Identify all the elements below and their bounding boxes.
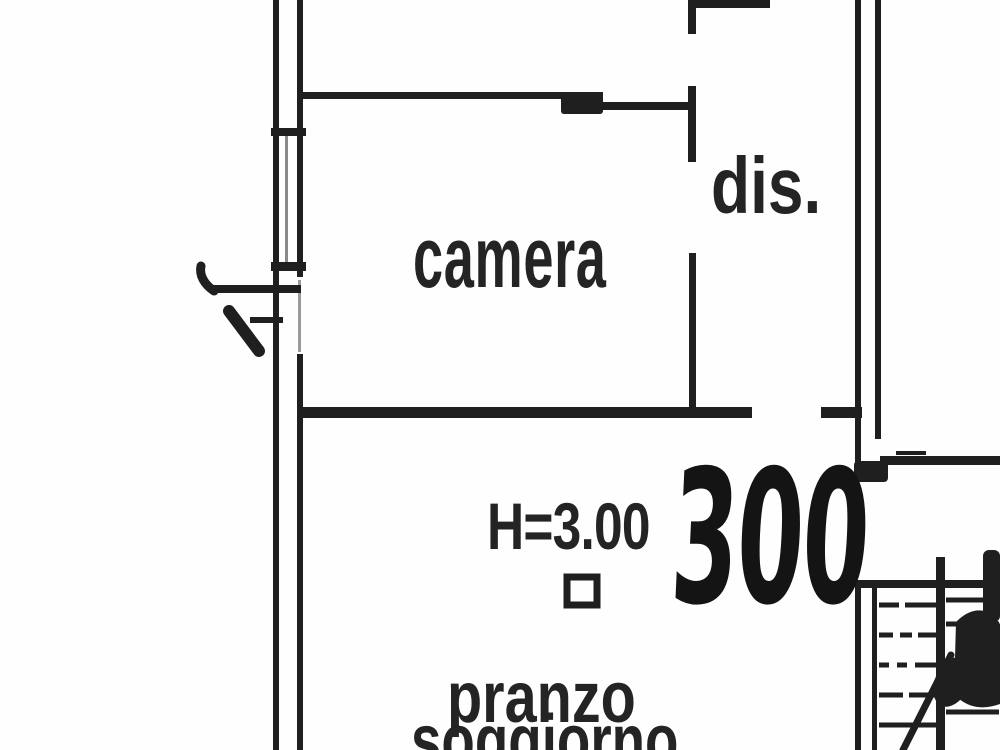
height-marker-square — [567, 577, 597, 605]
door-jamb-line — [250, 317, 283, 323]
window-sill-top — [271, 128, 306, 136]
room-label-soggiorno: soggiorno — [411, 705, 678, 750]
wall-right-turn — [880, 456, 1000, 465]
wall-right — [854, 0, 1000, 482]
room-label-dis: dis. — [711, 146, 821, 226]
wall-right-turn-dash — [896, 451, 926, 455]
wall-right-outer — [855, 0, 861, 481]
wall-right-inner — [875, 0, 881, 439]
door-leaf-open — [213, 285, 301, 293]
door-left — [201, 266, 301, 351]
stairs-center-rail — [936, 557, 945, 750]
stairs-left-wall-inner — [872, 588, 877, 750]
wall-dis-left-seg2 — [688, 86, 696, 162]
door-swing-hook — [201, 266, 214, 291]
stairs-top-edge — [855, 580, 1000, 588]
wall-camera-top-left — [300, 92, 603, 99]
wall-top-edge-stub — [696, 0, 770, 8]
room-label-camera: camera — [413, 215, 607, 301]
ceiling-height-label: H=3.00 — [487, 493, 650, 559]
wall-left-inner-upper — [297, 0, 303, 277]
wall-camera-top-right — [599, 102, 692, 110]
wall-dis-left-seg3 — [689, 253, 696, 414]
wall-left — [273, 0, 303, 750]
wall-camera-bottom — [300, 407, 752, 418]
wall-dis-left-seg1 — [688, 0, 696, 34]
handwritten-height-note: 300 — [668, 446, 873, 631]
floor-plan-scan: camera dis. H=3.00 300 pranzo soggiorno — [0, 0, 1000, 750]
window-glass-line — [285, 136, 288, 262]
wall-camera-top — [300, 92, 692, 114]
wall-camera-top-thick — [561, 95, 603, 114]
window-sill-bottom — [271, 262, 306, 271]
wall-left-outer — [273, 0, 279, 750]
wall-dis-left — [688, 0, 696, 414]
stairs — [855, 550, 1000, 750]
